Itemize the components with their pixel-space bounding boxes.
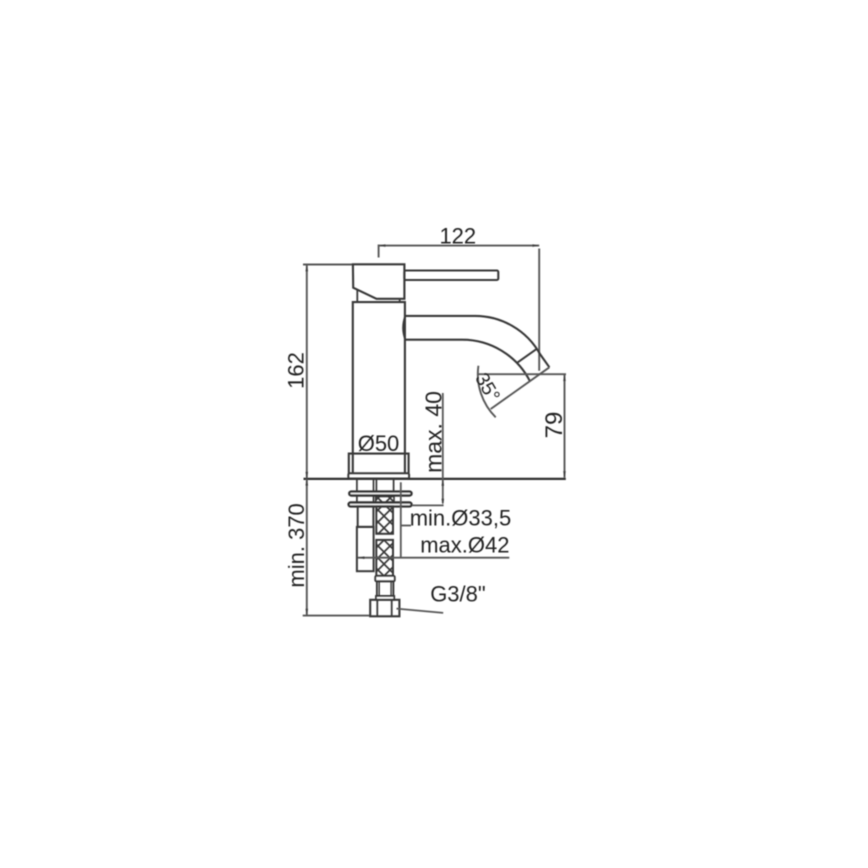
- svg-text:162: 162: [284, 352, 309, 389]
- svg-text:max. 40: max. 40: [421, 391, 447, 473]
- svg-text:G3/8": G3/8": [430, 582, 486, 607]
- svg-text:min. 370: min. 370: [284, 503, 309, 587]
- svg-text:79: 79: [541, 412, 568, 439]
- svg-text:max.Ø42: max.Ø42: [420, 532, 509, 557]
- svg-text:Ø50: Ø50: [358, 431, 400, 456]
- svg-text:122: 122: [439, 224, 476, 249]
- svg-text:min.Ø33,5: min.Ø33,5: [410, 506, 512, 531]
